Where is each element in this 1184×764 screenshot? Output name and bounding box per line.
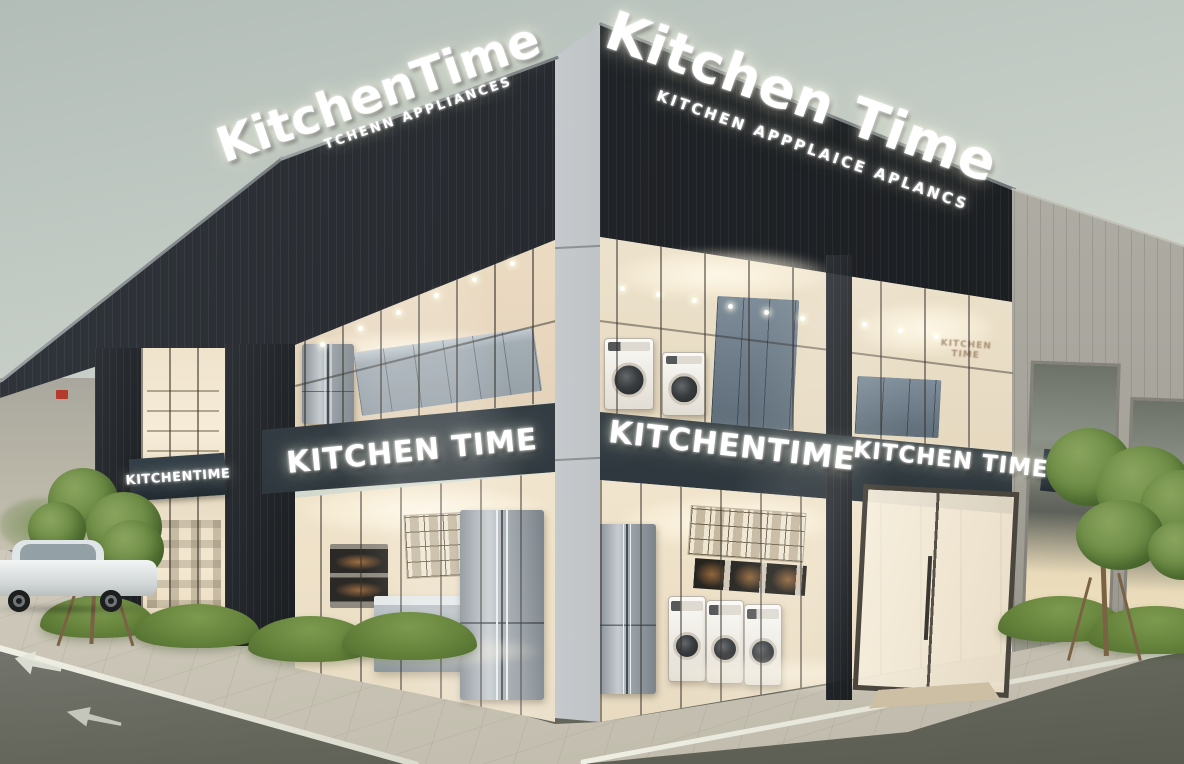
storefront-scene: KITC KIT KITCHEN TIME [0,0,1184,764]
distant-red-sign [56,390,68,399]
band-sign-far-left-label: KITCHENTIME [125,466,231,488]
car-wheel [100,590,122,612]
wall-pier [225,344,295,646]
car-wheel [8,590,30,612]
entrance-door [853,484,1020,698]
parked-car [0,540,157,610]
wall-pier [826,468,852,700]
band-sign-far-left: KITCHENTIME [129,453,228,502]
